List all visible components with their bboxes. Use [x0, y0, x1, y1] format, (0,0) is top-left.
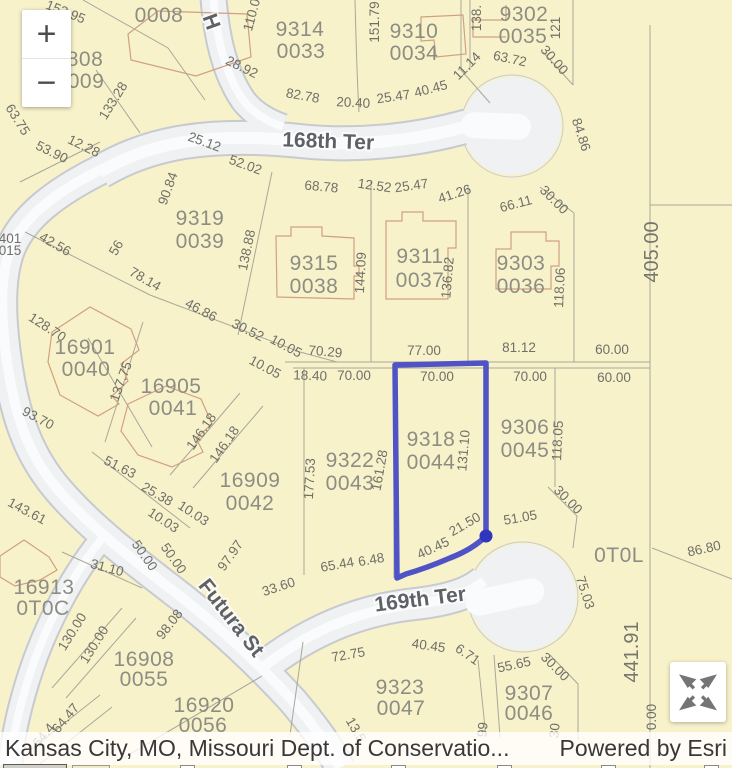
parcel-label: 0035: [499, 25, 548, 48]
attribution-bar: Kansas City, MO, Missouri Dept. of Conse…: [0, 732, 732, 765]
parcel-label: 0008: [135, 4, 184, 27]
parcel-label: 16905: [141, 375, 202, 398]
dimension-label: 118.06: [551, 267, 568, 308]
dimension-label: 70.00: [513, 369, 547, 384]
zoom-in-button[interactable]: +: [22, 10, 71, 58]
map-canvas[interactable]: 0008153.95808009H110.093140033151.799310…: [0, 0, 732, 768]
zoom-out-button[interactable]: −: [22, 58, 71, 107]
parcel-label: 0041: [149, 397, 198, 420]
dimension-label: 121: [548, 17, 563, 40]
parcel-label: 16913: [14, 576, 75, 599]
parcel-label: 0033: [277, 40, 326, 63]
parcel-label: 0047: [377, 697, 426, 720]
parcel-label: 9311: [396, 245, 443, 268]
parcel-label: 0040: [62, 358, 111, 381]
parcel-label: 0T0C: [16, 597, 69, 620]
dimension-label: 18.40: [293, 367, 327, 383]
minus-icon: −: [37, 64, 57, 103]
dimension-label: 015: [0, 243, 21, 258]
parcel-label: 9319: [176, 207, 225, 230]
parcel-label: 0046: [505, 702, 554, 725]
selected-parcel-vertex-dot[interactable]: [480, 530, 493, 543]
dimension-label: 60.00: [597, 370, 631, 385]
dimension-label: 77.00: [407, 343, 441, 358]
dimension-label: 68.78: [304, 178, 339, 196]
dimension-label: 144.09: [352, 252, 369, 294]
dimension-label: 81.12: [502, 340, 536, 355]
dimension-label: 138.: [469, 5, 484, 31]
parcel-label: 9318: [407, 428, 456, 451]
parcel-label: 0043: [326, 472, 375, 495]
parcel-label: 9322: [326, 449, 375, 472]
parcel-label: 0034: [390, 42, 439, 65]
expand-button[interactable]: [670, 662, 726, 722]
parcel-label: 9303: [497, 252, 546, 275]
dimension-label: 177.53: [301, 458, 318, 500]
attribution-sources: Kansas City, MO, Missouri Dept. of Conse…: [5, 735, 509, 762]
parcel-label: 0055: [120, 668, 169, 691]
powered-by-esri[interactable]: Powered by Esri: [560, 735, 727, 762]
parcel-label: 16901: [55, 336, 116, 359]
dimension-label: 70.29: [308, 343, 343, 361]
parcel-label: 9315: [290, 252, 339, 275]
parcel-label: 0038: [290, 275, 339, 298]
zoom-control: + −: [22, 10, 71, 107]
parcel-label: 0042: [226, 492, 275, 515]
parcel-label: 0T0L: [594, 544, 644, 567]
parcel-label: 808: [67, 48, 104, 71]
parcel-label: 0037: [396, 269, 445, 292]
parcel-label: 9310: [390, 20, 439, 43]
parcel-label: 0044: [407, 451, 456, 474]
dimension-label: 405.00: [641, 221, 663, 282]
dimension-label: 441.91: [621, 621, 643, 682]
parcel-label: 16909: [220, 469, 281, 492]
parcel-label: 009: [68, 70, 105, 93]
map-viewport[interactable]: 0008153.95808009H110.093140033151.799310…: [0, 0, 732, 768]
dimension-label: 118.05: [549, 420, 566, 461]
dimension-label: 151.79: [367, 1, 382, 42]
parcel-label: 0039: [176, 230, 225, 253]
parcel-label: 9323: [376, 676, 425, 699]
dimension-label: 70.00: [420, 369, 454, 384]
parcel-label: 0036: [497, 275, 546, 298]
dimension-label: 70.00: [337, 368, 371, 383]
street-label: 168th Ter: [282, 128, 375, 154]
bottom-edge-remnant: [3, 764, 67, 768]
parcel-label: 9314: [276, 18, 325, 41]
plus-icon: +: [37, 15, 57, 54]
parcel-label: 9306: [501, 416, 550, 439]
dimension-label: 60.00: [595, 342, 629, 357]
parcel-label: 0045: [501, 439, 550, 462]
dimension-label: 0.00: [644, 704, 659, 730]
parcel-label: 9302: [500, 3, 549, 26]
dimension-label: 20.40: [336, 94, 371, 111]
expand-arrows-icon: [676, 669, 720, 715]
